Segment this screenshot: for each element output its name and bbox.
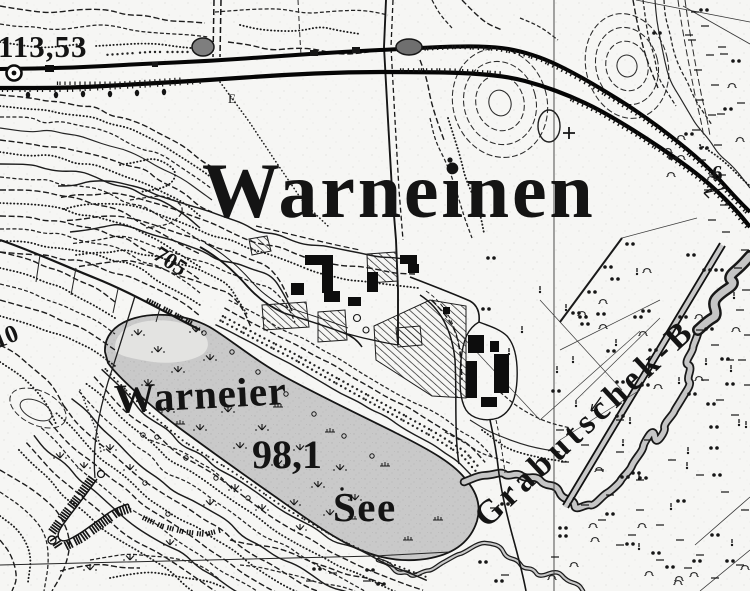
svg-text:6: 6 bbox=[712, 161, 723, 185]
svg-text:Warneier: Warneier bbox=[113, 367, 288, 422]
svg-text:Warneinen: Warneinen bbox=[202, 147, 596, 234]
svg-text:See: See bbox=[333, 484, 397, 530]
svg-text:113,53: 113,53 bbox=[0, 29, 88, 64]
svg-text:98,1: 98,1 bbox=[252, 432, 322, 477]
svg-text:E: E bbox=[228, 91, 236, 106]
